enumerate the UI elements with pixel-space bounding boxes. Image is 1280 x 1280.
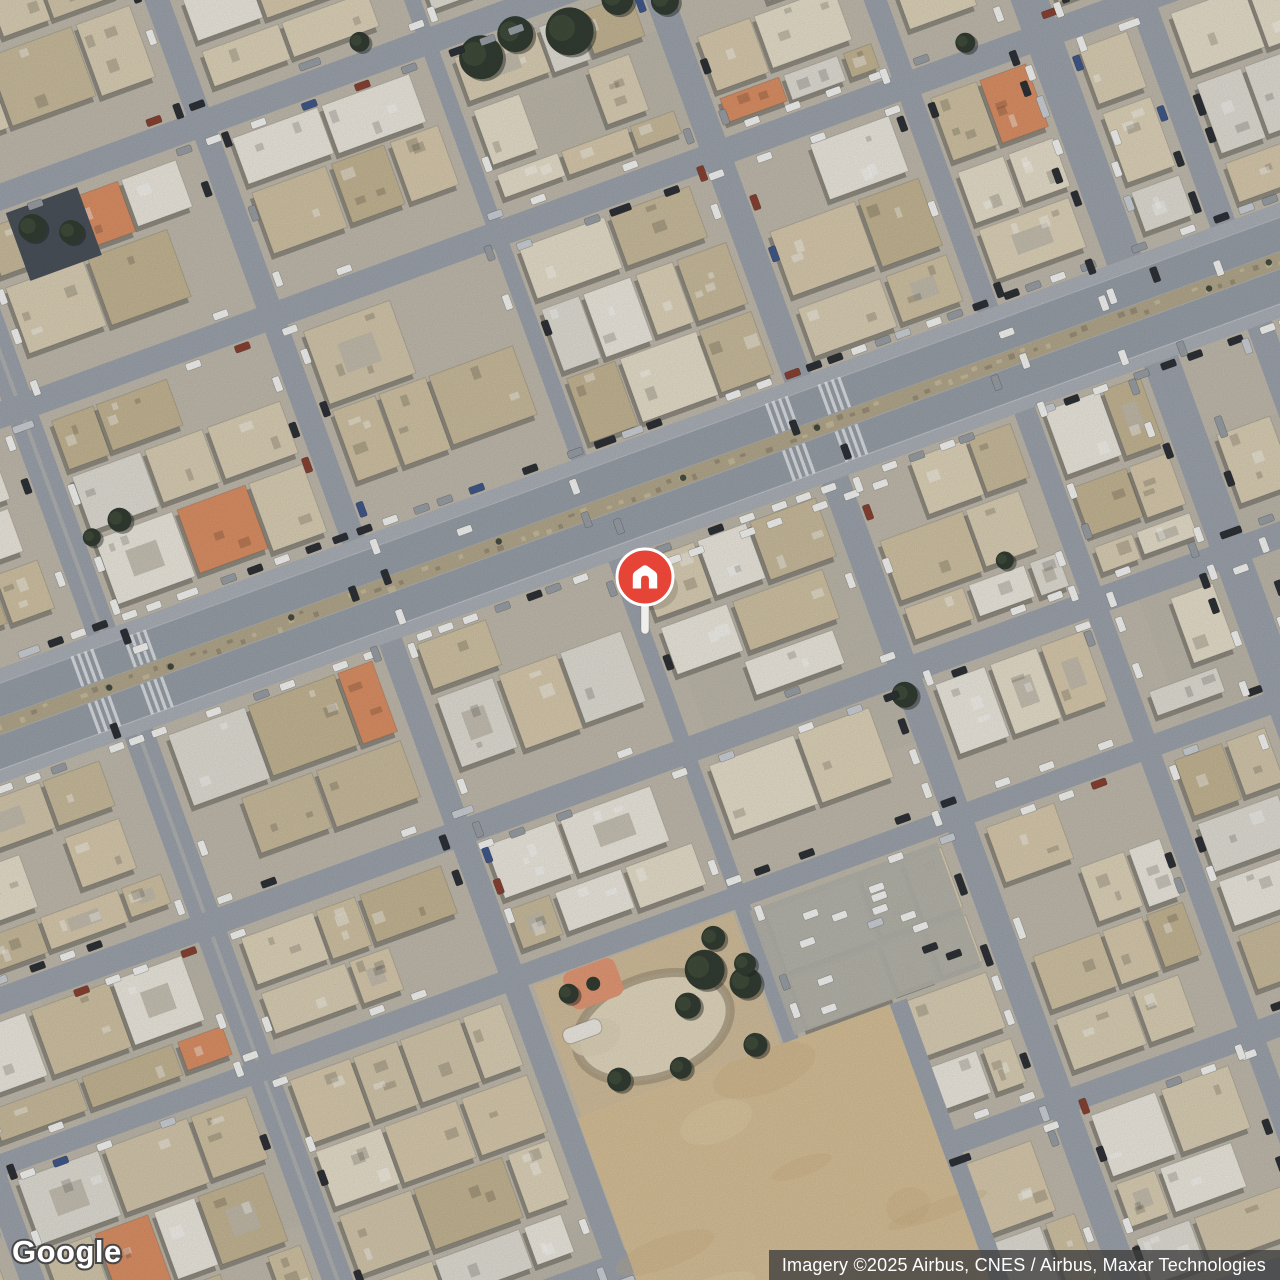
attribution-bar: Imagery ©2025 Airbus, CNES / Airbus, Max… xyxy=(769,1250,1280,1280)
attribution-text: Imagery ©2025 Airbus, CNES / Airbus, Max… xyxy=(782,1255,1266,1275)
satellite-map[interactable] xyxy=(0,0,1280,1280)
map-viewport[interactable]: Google Imagery ©2025 Airbus, CNES / Airb… xyxy=(0,0,1280,1280)
google-logo-text[interactable]: Google xyxy=(12,1234,122,1269)
google-watermark[interactable]: Google xyxy=(8,1230,168,1274)
